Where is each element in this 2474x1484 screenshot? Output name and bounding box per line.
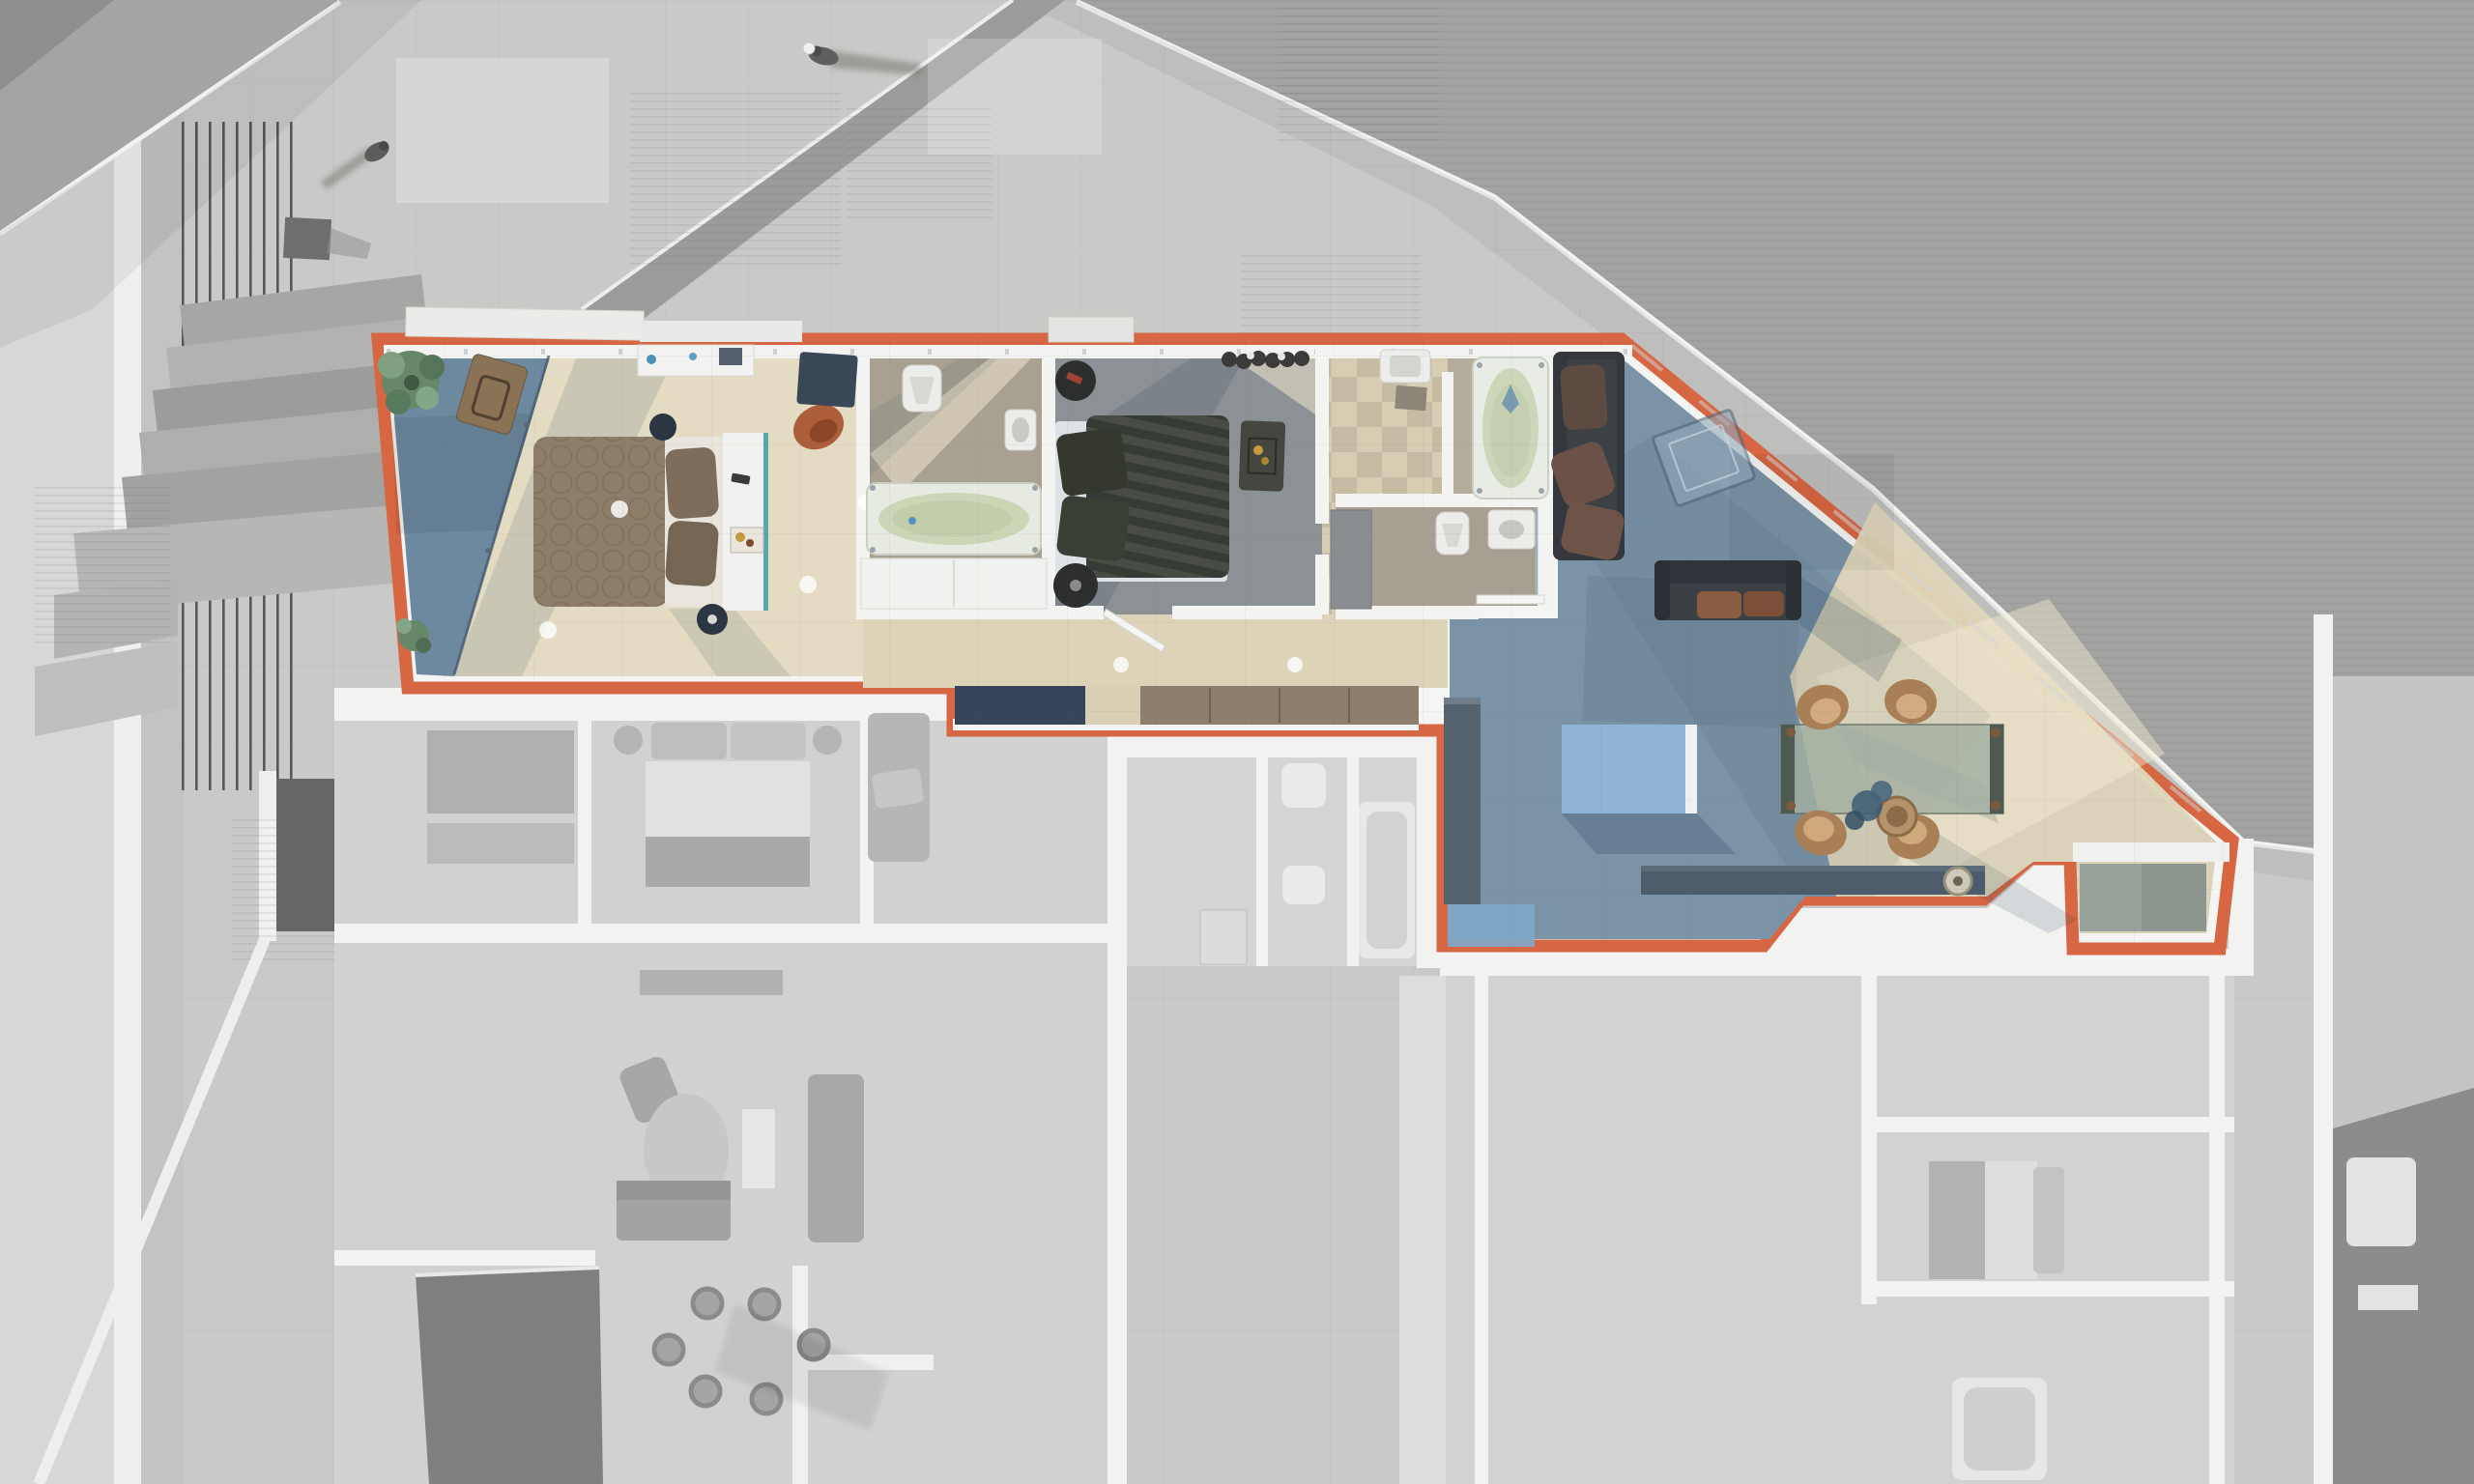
neighbor-fixture xyxy=(2346,1157,2416,1246)
utility-box xyxy=(283,217,331,260)
grating-patch xyxy=(630,93,841,265)
neighbor-tub-inner xyxy=(1964,1387,2035,1470)
ac-unit xyxy=(1049,317,1134,342)
neighbor-daybed-pillow xyxy=(872,768,925,810)
wall xyxy=(1256,757,1268,966)
wall xyxy=(334,1250,595,1266)
neighbor-dining-chair xyxy=(654,1335,683,1364)
wall xyxy=(2209,976,2225,1484)
wall xyxy=(1861,976,1877,1304)
neighbor-shower xyxy=(1200,910,1247,964)
pedestrian-head xyxy=(379,141,388,151)
neighbor-bed-pillows xyxy=(2033,1167,2064,1273)
floor-plan-render xyxy=(0,0,2474,1484)
grating-patch xyxy=(1278,6,1440,143)
wall xyxy=(1108,688,1127,1484)
planter-box xyxy=(640,321,802,342)
neighbor-toilet xyxy=(1281,763,1326,808)
light-patch xyxy=(396,58,609,203)
gray-wardrobe xyxy=(427,823,574,864)
neighbor-sofa-back xyxy=(617,1181,731,1200)
wall xyxy=(2314,614,2333,1484)
neighbor-fixture xyxy=(2358,1285,2418,1310)
neighbor-bathroom-mid xyxy=(1121,730,1446,968)
neighbor-side-table xyxy=(813,726,842,755)
wall xyxy=(334,924,1121,943)
neighbor-wardrobe-slab xyxy=(416,1268,603,1484)
neighbor-bed-pillow xyxy=(651,723,727,759)
neighbor-coffee-table xyxy=(742,1109,775,1188)
pedestrian-bag xyxy=(803,43,815,54)
neighbor-dining-chair xyxy=(691,1377,720,1406)
corridor xyxy=(1399,976,1446,1484)
grating-patch xyxy=(35,483,170,647)
light-patch xyxy=(928,39,1102,155)
neighbor-bed-pillow xyxy=(731,723,806,759)
neighbor-sideboard xyxy=(640,970,783,995)
floor-plan-canvas xyxy=(0,0,2474,1484)
wall xyxy=(1475,976,1488,1484)
neighbor-dining-chair xyxy=(693,1289,722,1318)
neighbor-sofa-vertical xyxy=(808,1074,864,1242)
neighbor-bed-blanket xyxy=(646,837,810,887)
wall xyxy=(1877,1281,2234,1297)
neighbor-side-table xyxy=(614,726,643,755)
floor xyxy=(1446,976,2234,1484)
wall xyxy=(1877,1117,2234,1132)
neighbor-tub-inner xyxy=(1366,812,1407,949)
wall xyxy=(1347,757,1359,966)
gray-wardrobe xyxy=(427,730,574,813)
planter-box xyxy=(406,307,644,340)
neighbor-bed-blanket xyxy=(1929,1161,1985,1279)
wall xyxy=(578,721,591,935)
neighbor-bidet xyxy=(1282,866,1325,904)
